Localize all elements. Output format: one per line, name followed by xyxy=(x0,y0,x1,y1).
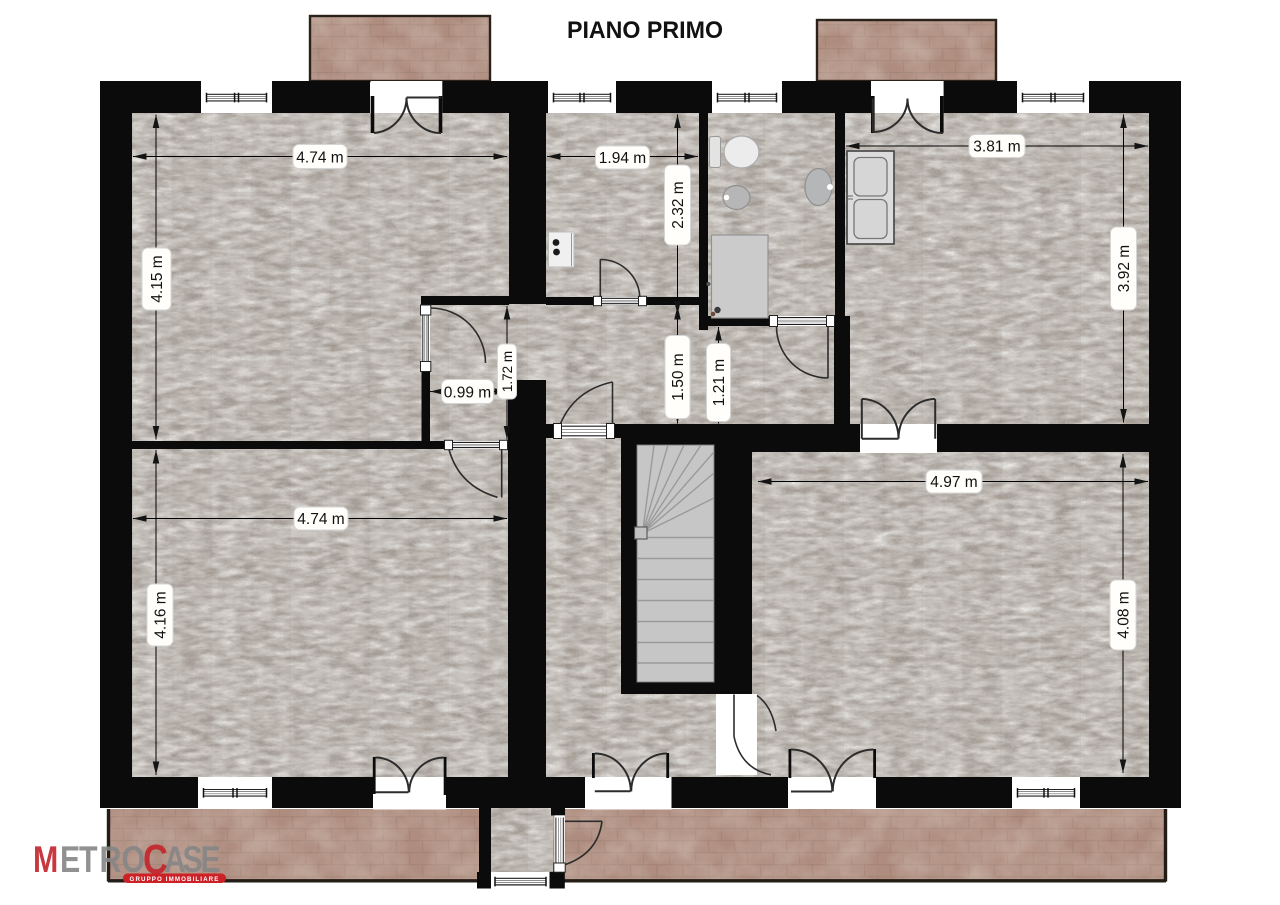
svg-text:E: E xyxy=(60,839,80,881)
svg-text:1.50 m: 1.50 m xyxy=(670,353,687,400)
svg-text:GRUPPO IMMOBILIARE: GRUPPO IMMOBILIARE xyxy=(130,876,220,883)
svg-text:1.21 m: 1.21 m xyxy=(711,359,728,406)
svg-text:1.72 m: 1.72 m xyxy=(500,351,515,392)
svg-text:4.74 m: 4.74 m xyxy=(296,150,343,167)
svg-text:T: T xyxy=(79,839,98,881)
svg-text:1.94 m: 1.94 m xyxy=(599,150,646,167)
svg-text:PIANO PRIMO: PIANO PRIMO xyxy=(567,17,723,44)
svg-text:M: M xyxy=(33,839,58,881)
svg-text:3.81 m: 3.81 m xyxy=(973,139,1020,156)
svg-text:4.16 m: 4.16 m xyxy=(153,591,170,638)
svg-text:0.99 m: 0.99 m xyxy=(444,385,491,402)
svg-text:4.74 m: 4.74 m xyxy=(297,511,344,528)
svg-text:3.92 m: 3.92 m xyxy=(1116,245,1133,292)
svg-text:4.08 m: 4.08 m xyxy=(1116,591,1133,638)
svg-text:4.97 m: 4.97 m xyxy=(930,474,977,491)
svg-text:2.32 m: 2.32 m xyxy=(670,181,687,228)
svg-text:4.15 m: 4.15 m xyxy=(149,255,166,302)
svg-text:R: R xyxy=(99,839,121,881)
